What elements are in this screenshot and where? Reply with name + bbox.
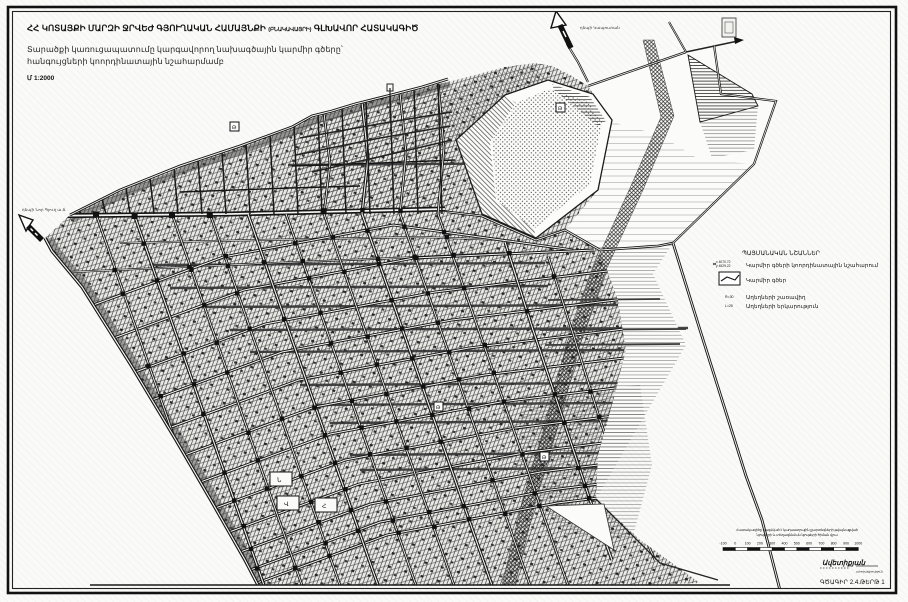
svg-text:y 4529.22: y 4529.22 (716, 264, 731, 268)
svg-text:800: 800 (831, 542, 837, 546)
svg-text:400: 400 (782, 542, 788, 546)
svg-text:նյութերի և տեղազննման նյութերի: նյութերի և տեղազննման նյութերի հիման վրա (756, 533, 838, 537)
svg-text:ՊԱՅՄԱՆԱԿԱՆ ՆՇԱՆՆԵՐ: ՊԱՅՄԱՆԱԿԱՆ ՆՇԱՆՆԵՐ (742, 250, 820, 257)
svg-text:Աղեղների շառավիղ: Աղեղների շառավիղ (746, 294, 806, 301)
svg-text:հանգույցների կոորդինատային նշա: հանգույցների կոորդինատային նշահարմամբ (27, 57, 224, 66)
svg-text:100: 100 (745, 542, 751, 546)
svg-text:ԳԾԱԳԻՐ 2.4.ԹԵՐԹ 1: ԳԾԱԳԻՐ 2.4.ԹԵՐԹ 1 (820, 579, 885, 586)
svg-text:Մ 1:2000: Մ 1:2000 (27, 74, 55, 82)
svg-text:ՀՀ ԿՈՏԱՅՔԻ ՄԱՐԶԻ ՋՐՎԵԺ ԳՅՈՒՂԱԿ: ՀՀ ԿՈՏԱՅՔԻ ՄԱՐԶԻ ՋՐՎԵԺ ԳՅՈՒՂԱԿԱՆ ՀԱՄԱՅՆՔ… (27, 23, 419, 33)
svg-text:Աղեղների երկարություն: Աղեղների երկարություն (746, 303, 819, 310)
svg-text:200: 200 (757, 542, 763, 546)
svg-text:0: 0 (734, 542, 736, 546)
svg-text:Հատակագիծը կազմված է կադաստրայ: Հատակագիծը կազմված է կադաստրային քարտեզն… (736, 528, 858, 532)
svg-text:900: 900 (843, 542, 849, 546)
svg-text:L=25: L=25 (725, 304, 733, 308)
svg-text:300: 300 (769, 542, 775, 546)
svg-text:ստորագրություն: ստորագրություն (856, 570, 883, 574)
svg-text:Տարածքի կառուցապատումը կարգավո: Տարածքի կառուցապատումը կարգավորող նախագծ… (27, 45, 343, 54)
svg-text:Կարմիր գծերի կոորդինատային նշա: Կարմիր գծերի կոորդինատային նշահարում (746, 262, 879, 269)
svg-text:700: 700 (818, 542, 824, 546)
svg-text:-100: -100 (719, 542, 726, 546)
svg-text:500: 500 (794, 542, 800, 546)
svg-text:Կարմիր գծեր: Կարմիր գծեր (746, 277, 787, 284)
svg-text:600: 600 (806, 542, 812, 546)
svg-text:R=30: R=30 (725, 295, 734, 299)
svg-text:1000: 1000 (854, 542, 862, 546)
